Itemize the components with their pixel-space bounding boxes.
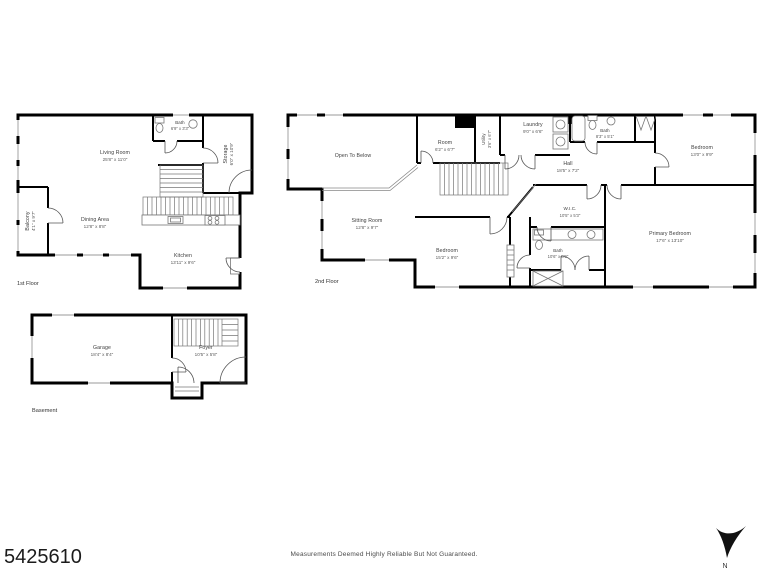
room-label-utility: Utility <box>481 133 486 145</box>
room-label-sitting: Sitting Room <box>352 218 383 224</box>
room-dim-bedroom-left: 15'2" x 9'6" <box>436 255 459 260</box>
room-label-bath-primary: Bath <box>553 248 563 253</box>
disclaimer-text: Measurements Deemed Highly Reliable But … <box>0 551 768 558</box>
first-floor-plan: Living Room 25'8" x 11'0" Bath 6'9" x 3'… <box>15 108 260 293</box>
room-dim-primary: 17'6" x 13'10" <box>656 238 684 243</box>
room-dim-bath-primary: 10'6" x 8'2" <box>548 254 569 259</box>
room-dim-bedroom-right: 13'0" x 9'9" <box>691 152 714 157</box>
room-label-bath-upper: Bath <box>600 128 610 133</box>
first-floor-walls <box>18 115 252 288</box>
room-dim-dining: 12'8" x 8'8" <box>84 224 107 229</box>
north-arrow-icon <box>716 526 746 558</box>
room-dim-kitchen: 13'11" x 9'6" <box>171 260 196 265</box>
room-dim-sitting: 12'8" x 9'7" <box>356 225 379 230</box>
room-label-hall: Hall <box>563 161 572 167</box>
room-label-living: Living Room <box>100 150 130 156</box>
room-dim-bath1: 6'9" x 3'3" <box>171 126 190 131</box>
compass: N <box>710 522 754 574</box>
room-dim-foyer: 10'5" x 5'8" <box>195 352 218 357</box>
room-dim-laundry: 9'0" x 6'6" <box>523 129 543 134</box>
room-dim-garage: 18'4" x 8'4" <box>91 352 114 357</box>
compass-north-label: N <box>722 563 727 570</box>
room-label-open-to-below: Open To Below <box>335 153 372 159</box>
second-floor-plan: Open To Below Room 6'2" x 6'7" Utility 3… <box>285 105 765 300</box>
room-dim-utility: 3'6" x 6'7" <box>487 129 492 148</box>
room-label-room: Room <box>438 140 452 146</box>
room-dim-room: 6'2" x 6'7" <box>435 147 455 152</box>
room-dim-hall: 18'5" x 7'2" <box>557 168 580 173</box>
room-dim-wic: 10'5" x 5'3" <box>560 213 581 218</box>
room-label-kitchen: Kitchen <box>174 253 192 259</box>
room-label-wic: W.I.C. <box>563 206 576 211</box>
room-label-primary: Primary Bedroom <box>649 231 691 237</box>
room-label-garage: Garage <box>93 345 111 351</box>
room-label-dining: Dining Area <box>81 217 109 223</box>
room-label-bedroom-right: Bedroom <box>691 145 713 151</box>
room-dim-bath-upper: 8'3" x 5'1" <box>596 134 615 139</box>
room-label-bath1: Bath <box>175 120 185 125</box>
basement-plan: Garage 18'4" x 8'4" Foyer 10'5" x 5'8" B… <box>28 308 263 420</box>
floor-caption-second: 2nd Floor <box>315 279 339 285</box>
room-dim-living: 25'8" x 11'0" <box>103 157 128 162</box>
floor-caption-first: 1st Floor <box>17 281 39 287</box>
room-label-foyer: Foyer <box>199 345 213 351</box>
room-label-laundry: Laundry <box>523 122 543 128</box>
floor-caption-basement: Basement <box>32 408 58 414</box>
room-label-bedroom-left: Bedroom <box>436 248 458 254</box>
room-dim-storage: 6'0" x 10'9" <box>229 142 234 165</box>
room-dim-balcony: 4'1" x 9'7" <box>31 211 36 231</box>
